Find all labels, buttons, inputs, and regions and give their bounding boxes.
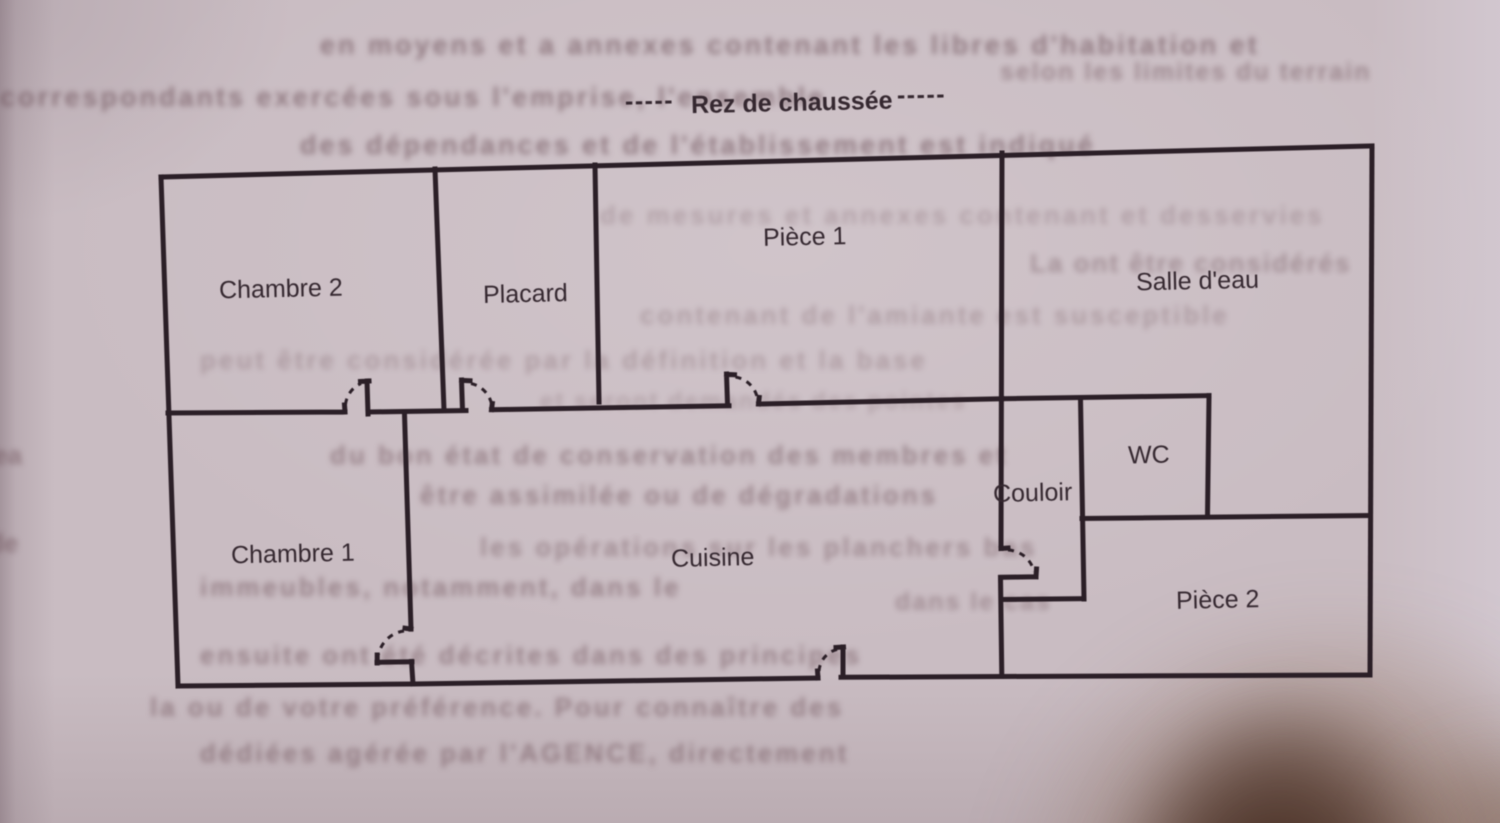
- svg-text:Salle d'eau: Salle d'eau: [1136, 266, 1260, 297]
- svg-text:Chambre 2: Chambre 2: [219, 274, 343, 305]
- svg-text:Placard: Placard: [483, 279, 568, 309]
- svg-text:Pièce 1: Pièce 1: [763, 222, 847, 252]
- svg-text:Couloir: Couloir: [993, 478, 1073, 508]
- svg-text:-----: -----: [625, 86, 675, 115]
- svg-text:Pièce 2: Pièce 2: [1176, 585, 1260, 615]
- svg-text:Chambre 1: Chambre 1: [231, 539, 355, 570]
- svg-text:WC: WC: [1128, 441, 1170, 470]
- svg-text:-----: -----: [897, 80, 947, 109]
- svg-text:Cuisine: Cuisine: [671, 543, 755, 573]
- svg-text:Rez de chaussée: Rez de chaussée: [691, 87, 893, 120]
